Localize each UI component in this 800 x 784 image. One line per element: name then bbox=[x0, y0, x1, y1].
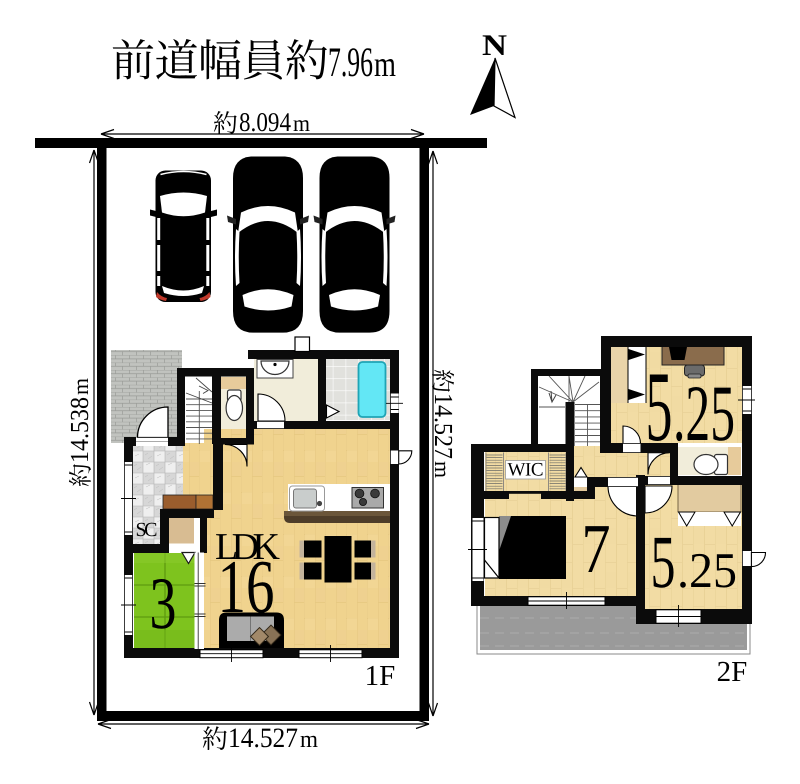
svg-text:7.96: 7.96 bbox=[328, 40, 373, 86]
svg-text:3: 3 bbox=[150, 563, 177, 645]
svg-text:SC: SC bbox=[136, 519, 158, 541]
svg-text:N: N bbox=[482, 29, 507, 62]
svg-text:7: 7 bbox=[582, 511, 611, 588]
svg-text:14.538: 14.538 bbox=[65, 397, 94, 463]
svg-text:14.527: 14.527 bbox=[429, 393, 458, 459]
svg-text:16: 16 bbox=[218, 545, 275, 629]
svg-text:8.094: 8.094 bbox=[239, 107, 291, 137]
svg-text:5: 5 bbox=[651, 521, 676, 604]
svg-text:m: m bbox=[293, 111, 310, 136]
svg-text:1F: 1F bbox=[365, 660, 396, 692]
svg-text:m: m bbox=[300, 727, 318, 753]
svg-text:14.527: 14.527 bbox=[228, 723, 298, 754]
svg-text:m: m bbox=[430, 461, 455, 478]
svg-text:.25: .25 bbox=[677, 542, 737, 598]
svg-text:2F: 2F bbox=[717, 656, 748, 688]
svg-text:5: 5 bbox=[646, 351, 673, 462]
svg-text:.25: .25 bbox=[673, 370, 735, 458]
svg-text:m: m bbox=[68, 378, 93, 395]
svg-text:m: m bbox=[374, 44, 396, 84]
svg-text:WIC: WIC bbox=[508, 460, 544, 481]
